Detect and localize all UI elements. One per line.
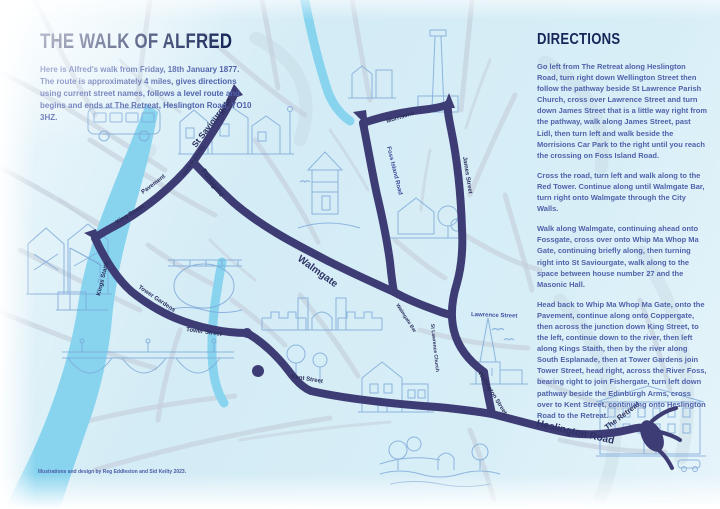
house-with-trees-icon [390, 198, 464, 238]
intro-text: Here is Alfred's walk from Friday, 18th … [40, 64, 252, 124]
directions-panel: DIRECTIONS Go left from The Retreat alon… [537, 31, 708, 430]
street-label-st-lawrence-church: St Lawrence Church [429, 324, 440, 373]
street-label-fossgate: Fossgate [199, 167, 226, 199]
directions-paragraph-2: Cross the road, turn left and walk along… [537, 170, 708, 214]
factory-chimney-icon [418, 30, 458, 112]
street-label-walmgate-bar: Walmgate Bar [394, 303, 417, 334]
intro-block: THE WALK OF ALFRED Here is Alfred's walk… [40, 30, 252, 124]
directions-paragraph-1: Go left from The Retreat along Heslingto… [537, 61, 708, 161]
walk-leaflet: St Saviourgate Pavement Fossgate King St… [0, 0, 720, 509]
credit-line: Illustrations and design by Reg Eddlesto… [38, 469, 186, 475]
city-buildings-icon [348, 66, 396, 98]
directions-paragraph-3: Walk along Walmgate, continuing ahead on… [537, 223, 708, 290]
street-label-lawrence-street: Lawrence Street [471, 312, 518, 320]
directions-heading: DIRECTIONS [537, 31, 677, 49]
street-label-foss-island-road: Foss Island Road [385, 146, 403, 196]
directions-paragraph-4: Head back to Whip Ma Whop Ma Gate, onto … [537, 299, 708, 421]
page-title: THE WALK OF ALFRED [40, 30, 210, 54]
